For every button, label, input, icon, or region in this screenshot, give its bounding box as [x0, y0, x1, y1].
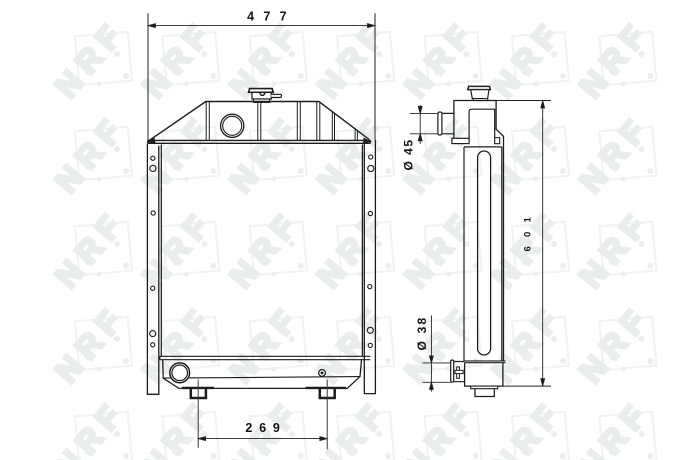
svg-text:477: 477	[247, 10, 296, 24]
svg-text:Ø 45: Ø 45	[401, 138, 415, 170]
svg-text:Ø 38: Ø 38	[415, 316, 429, 351]
svg-text:269: 269	[245, 421, 286, 435]
svg-text:601: 601	[523, 208, 534, 251]
